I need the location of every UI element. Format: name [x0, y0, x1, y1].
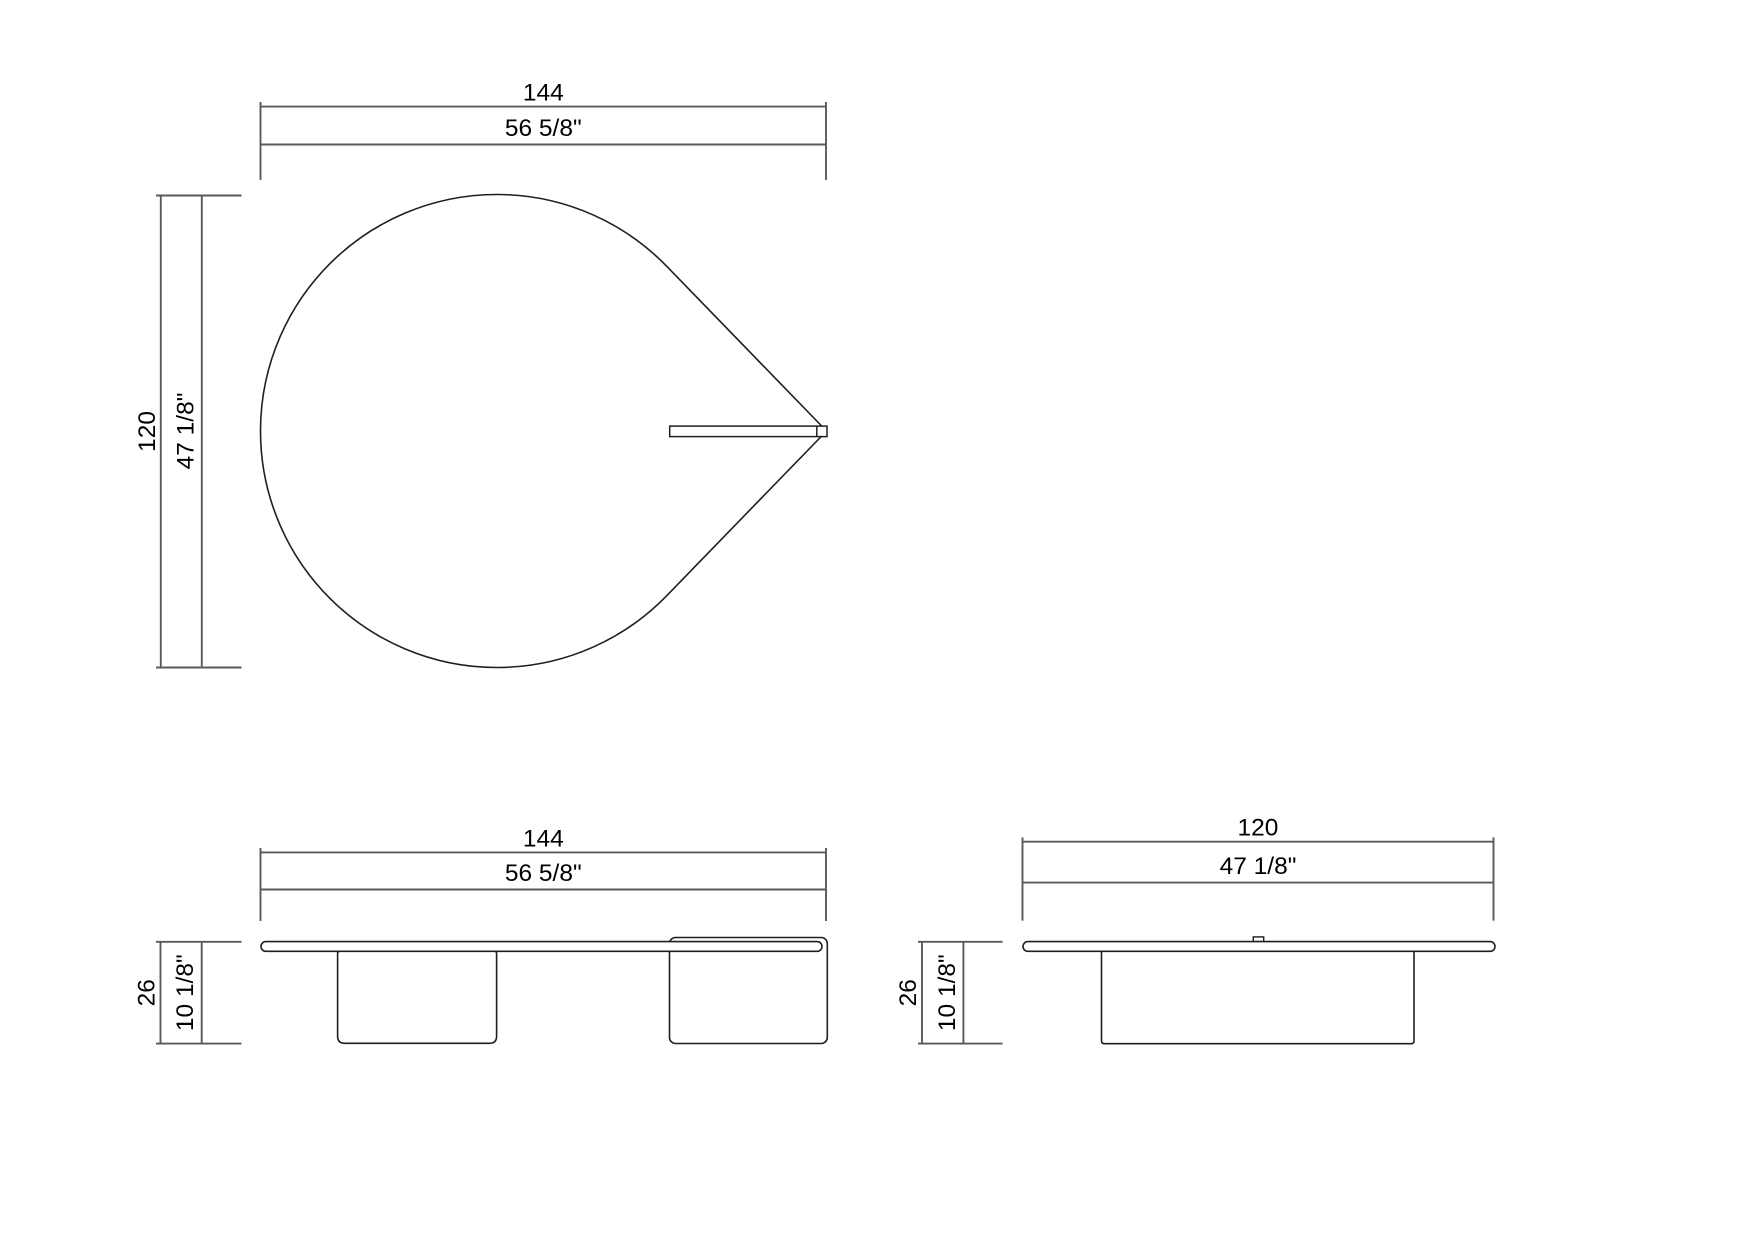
svg-text:10 1/8": 10 1/8": [934, 954, 961, 1031]
svg-text:144: 144: [523, 80, 564, 107]
svg-text:10 1/8": 10 1/8": [172, 954, 199, 1031]
svg-text:56 5/8": 56 5/8": [505, 860, 582, 887]
svg-text:26: 26: [134, 979, 161, 1006]
svg-text:47 1/8": 47 1/8": [172, 393, 199, 470]
svg-text:120: 120: [1238, 815, 1279, 842]
svg-text:56 5/8": 56 5/8": [505, 115, 582, 142]
svg-text:26: 26: [895, 979, 922, 1006]
svg-text:47 1/8": 47 1/8": [1220, 853, 1297, 880]
svg-text:144: 144: [523, 826, 564, 853]
svg-text:120: 120: [134, 411, 161, 452]
